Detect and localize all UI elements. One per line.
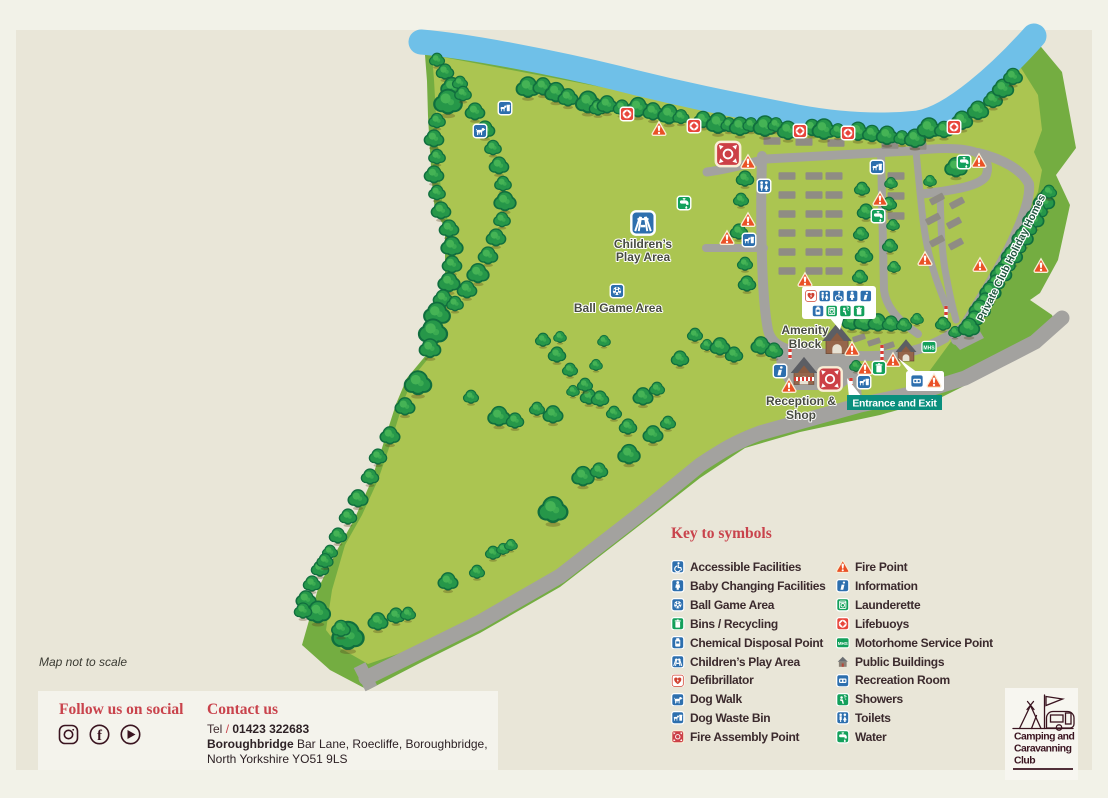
- svg-text:Amenity: Amenity: [781, 323, 829, 337]
- svg-text:Play Area: Play Area: [616, 250, 671, 264]
- svg-text:Block: Block: [789, 337, 822, 351]
- svg-text:Entrance and Exit: Entrance and Exit: [852, 399, 937, 410]
- svg-text:Caravanning: Caravanning: [1014, 744, 1072, 755]
- svg-text:Shop: Shop: [786, 408, 816, 422]
- svg-text:Children’s: Children’s: [614, 237, 673, 251]
- svg-text:Reception &: Reception &: [766, 394, 836, 408]
- svg-text:Camping and: Camping and: [1014, 732, 1074, 743]
- svg-text:Club: Club: [1014, 756, 1035, 767]
- svg-text:Ball Game Area: Ball Game Area: [574, 301, 663, 315]
